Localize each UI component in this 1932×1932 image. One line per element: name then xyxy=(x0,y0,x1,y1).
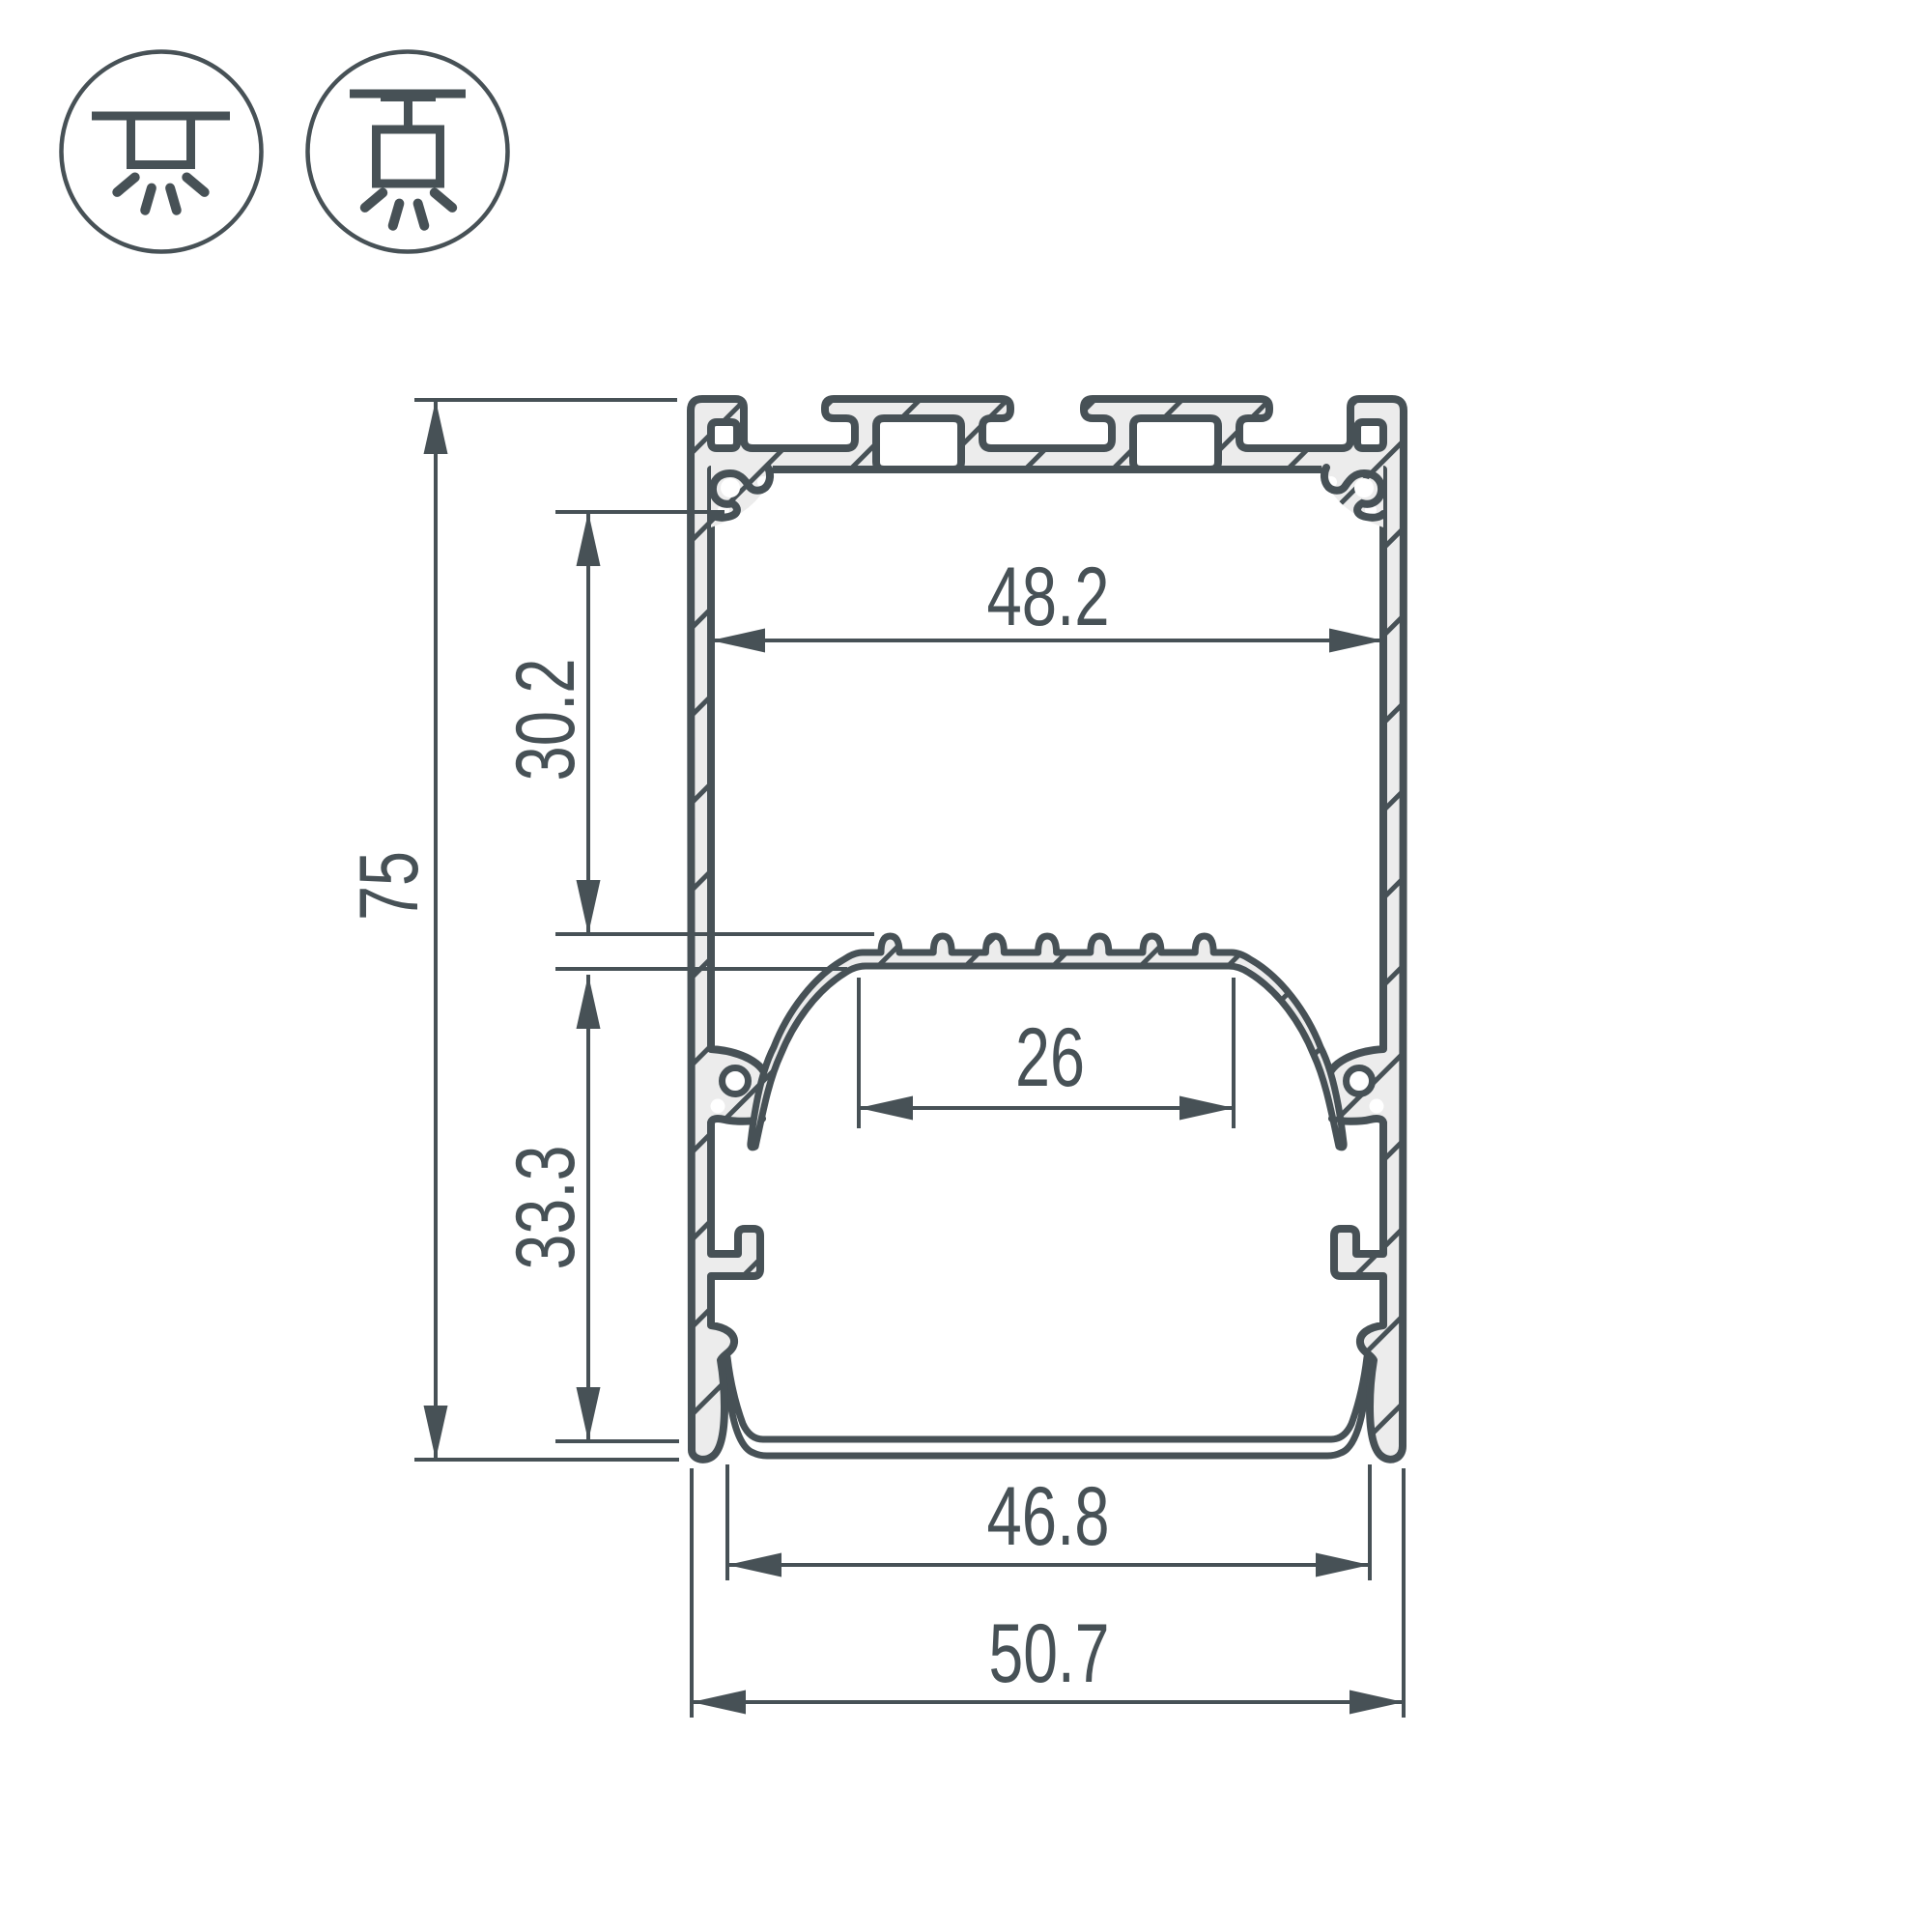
svg-text:75: 75 xyxy=(343,851,436,921)
svg-text:50.7: 50.7 xyxy=(989,1607,1110,1700)
svg-text:46.8: 46.8 xyxy=(987,1470,1110,1563)
svg-text:30.2: 30.2 xyxy=(499,659,592,781)
svg-text:48.2: 48.2 xyxy=(987,551,1110,643)
svg-text:33.3: 33.3 xyxy=(499,1146,592,1270)
svg-text:26: 26 xyxy=(1015,1011,1085,1104)
